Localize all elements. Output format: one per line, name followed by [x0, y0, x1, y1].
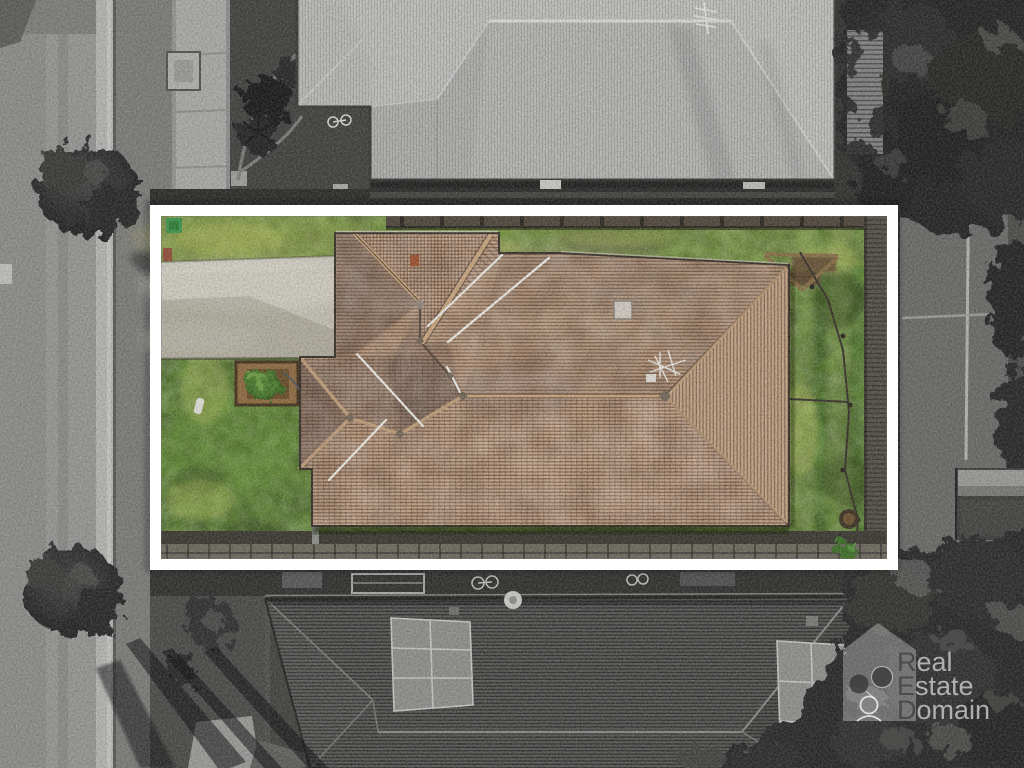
svg-text:Domain: Domain [897, 695, 990, 725]
